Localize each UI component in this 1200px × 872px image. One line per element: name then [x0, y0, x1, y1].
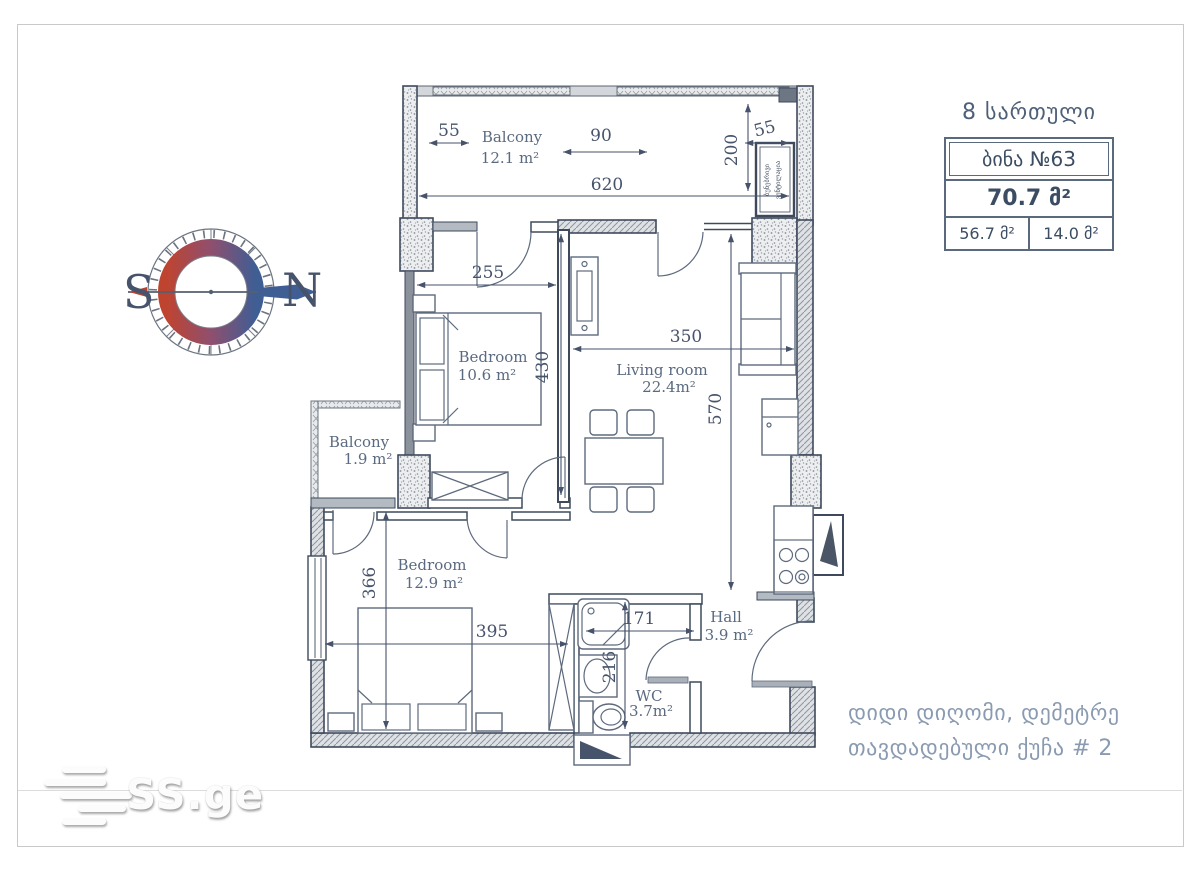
- floor-label: 8 სართული: [944, 100, 1114, 125]
- compass-north-label: N: [282, 263, 322, 317]
- room-balcony-left-name: Balcony: [329, 433, 390, 451]
- room-bedroom1-name: Bedroom: [459, 348, 528, 366]
- logo-bar: [62, 766, 106, 773]
- address-text: დიდი დიღომი, დემეტრე თავდადებული ქუჩა # …: [848, 696, 1120, 766]
- dim-216: 216: [600, 651, 620, 683]
- dim-366: 366: [360, 567, 380, 599]
- dining-set: [585, 410, 663, 512]
- wardrobe-bedroom1: [432, 472, 508, 500]
- room-hall-area: 3.9 m²: [705, 626, 754, 644]
- total-area: 70.7 მ²: [946, 179, 1112, 216]
- room-hall-name: Hall: [710, 608, 742, 626]
- compass-rose: S N: [123, 229, 322, 355]
- dim-55-left: 55: [438, 121, 460, 141]
- washing-machine: [574, 735, 630, 765]
- logo-bar: [60, 792, 132, 799]
- wardrobe-strip: [549, 604, 574, 730]
- dim-55-right: 55: [752, 117, 778, 142]
- floor-plan-page: S N ბუნებრივი ვენტილაცია: [0, 0, 1200, 872]
- ssge-logo-text: SS.ge: [126, 770, 264, 819]
- dim-200: 200: [722, 134, 742, 166]
- room-balcony-top-area: 12.1 m²: [481, 149, 539, 167]
- balcony-area: 14.0 მ²: [1030, 218, 1112, 249]
- room-wc-area: 3.7m²: [629, 702, 673, 720]
- dim-430: 430: [533, 351, 553, 383]
- kitchen-window-bay: [813, 515, 843, 575]
- tv-cabinet: [571, 257, 598, 335]
- room-balcony-left-area: 1.9 m²: [344, 450, 393, 468]
- bathtub: [578, 599, 629, 649]
- apartment-card: ბინა №63 70.7 მ² 56.7 მ² 14.0 მ²: [944, 137, 1114, 251]
- dim-350: 350: [670, 327, 702, 347]
- dim-90: 90: [590, 126, 612, 146]
- apartment-number: ბინა №63: [949, 142, 1109, 176]
- living-area: 56.7 მ²: [946, 218, 1030, 249]
- sofa: [739, 263, 796, 375]
- fridge: [762, 399, 798, 455]
- room-living-name: Living room: [616, 361, 708, 379]
- dim-255: 255: [472, 263, 504, 283]
- room-living-area: 22.4m²: [642, 378, 696, 396]
- room-balcony-top-name: Balcony: [482, 128, 543, 146]
- address-line-1: დიდი დიღომი, დემეტრე: [848, 696, 1120, 731]
- balcony-top-structure: ბუნებრივი ვენტილაცია: [403, 86, 813, 225]
- apartment-info-panel: 8 სართული ბინა №63 70.7 მ² 56.7 მ² 14.0 …: [944, 100, 1114, 251]
- vent-shaft-box: ბუნებრივი ვენტილაცია: [756, 143, 794, 216]
- furniture: [328, 257, 813, 765]
- address-line-2: თავდადებული ქუჩა # 2: [848, 731, 1120, 766]
- logo-bar: [62, 818, 106, 825]
- bedroom2-window: [308, 556, 326, 660]
- room-bedroom2-area: 12.9 m²: [405, 574, 463, 592]
- room-bedroom1-area: 10.6 m²: [458, 366, 516, 384]
- dim-570: 570: [706, 393, 726, 425]
- dim-395: 395: [476, 622, 508, 642]
- toilet: [579, 701, 625, 733]
- kitchen-counter: [774, 506, 813, 594]
- dim-171: 171: [623, 609, 655, 629]
- logo-bar: [78, 805, 126, 812]
- logo-bar: [44, 779, 106, 786]
- dim-620: 620: [591, 175, 623, 195]
- vent-shaft-label-1: ბუნებრივი: [762, 163, 771, 196]
- compass-south-label: S: [123, 265, 155, 319]
- room-bedroom2-name: Bedroom: [398, 556, 467, 574]
- vent-shaft-label-2: ვენტილაცია: [774, 161, 782, 199]
